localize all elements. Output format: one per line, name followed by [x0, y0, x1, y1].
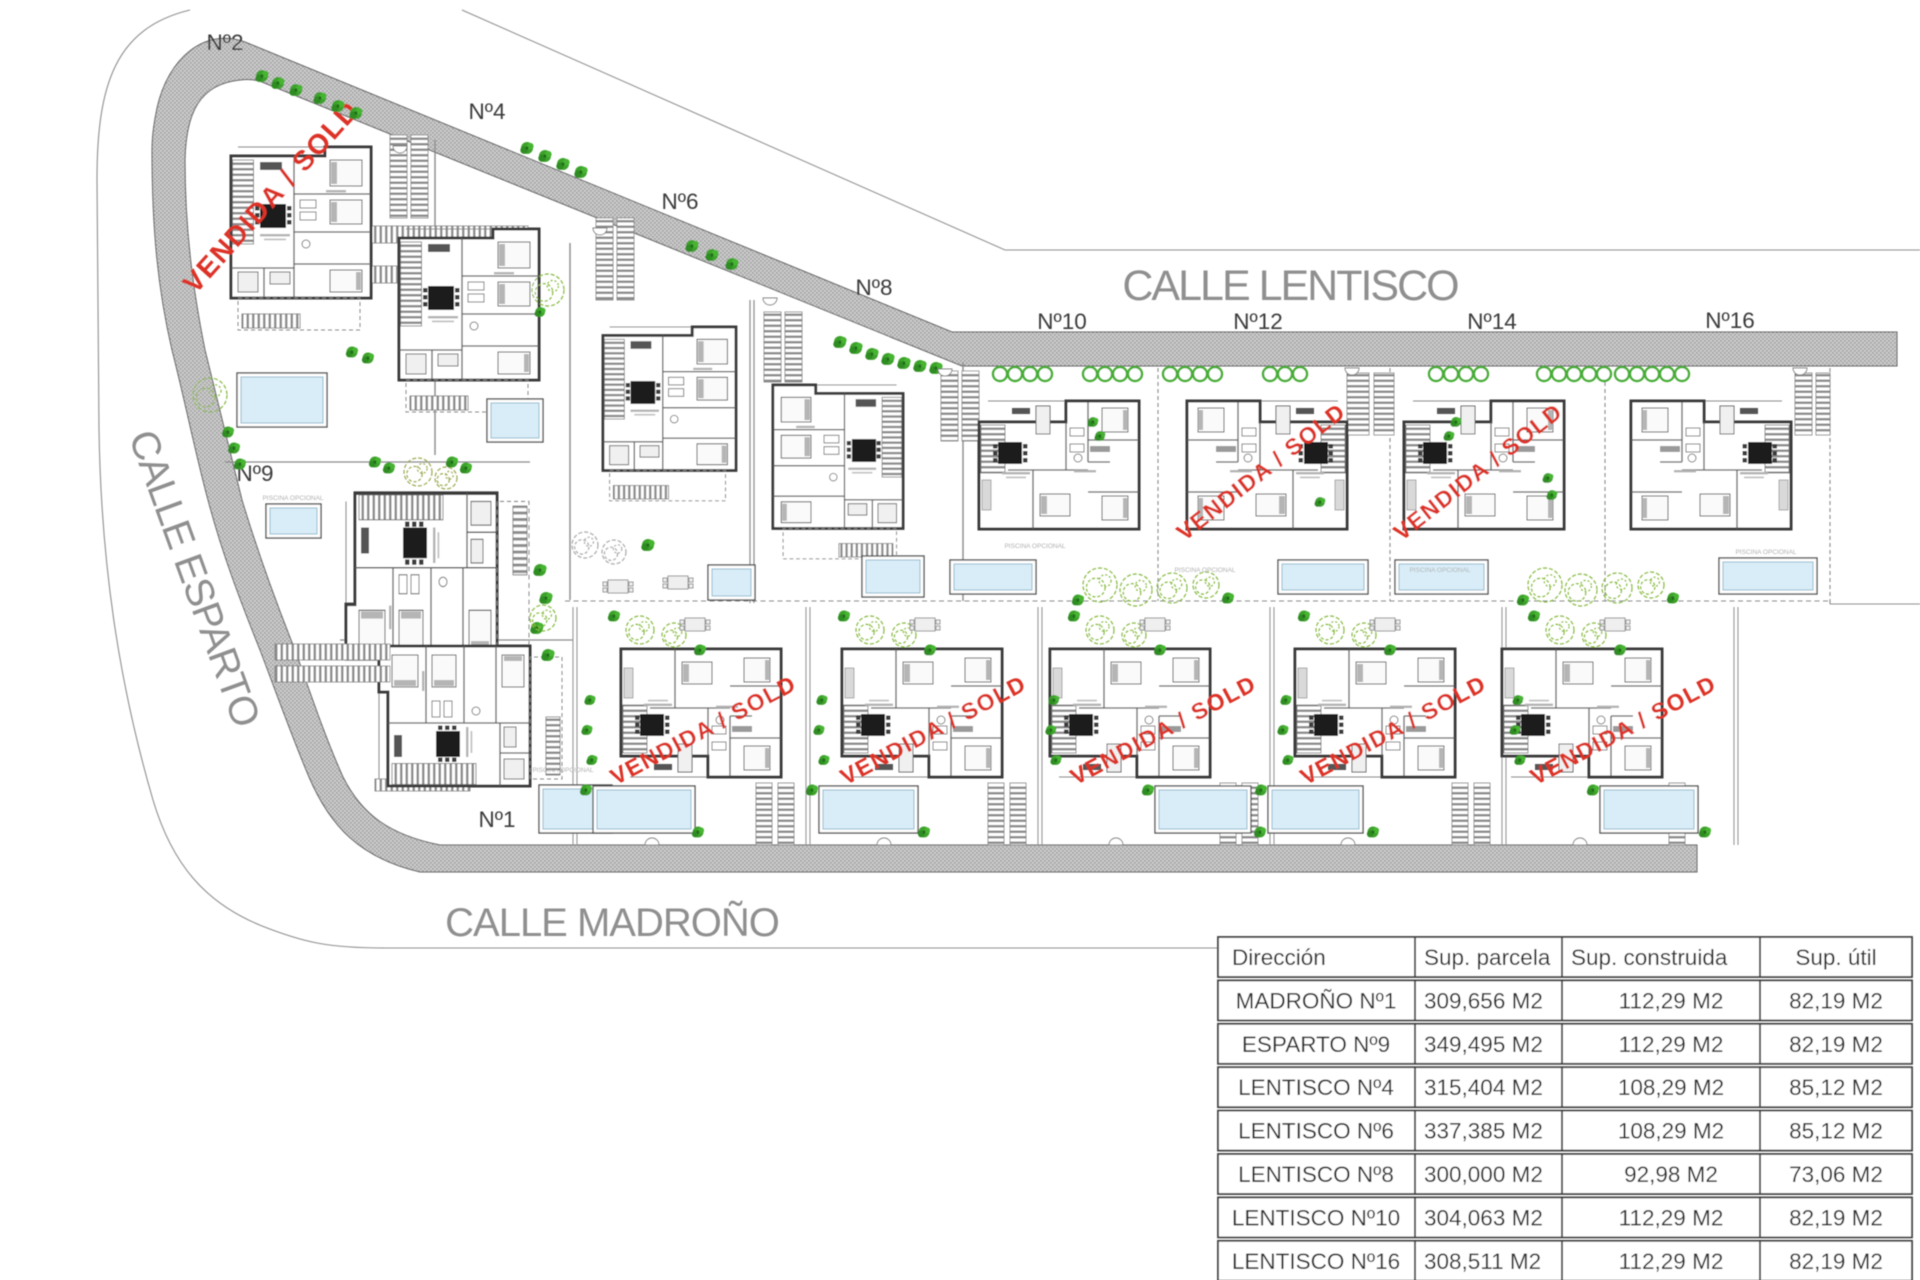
svg-text:LENTISCO Nº16: LENTISCO Nº16: [1232, 1249, 1400, 1274]
svg-text:300,000 M2: 300,000 M2: [1424, 1162, 1543, 1187]
svg-text:82,19 M2: 82,19 M2: [1789, 1032, 1883, 1057]
svg-text:Nº6: Nº6: [662, 189, 699, 214]
svg-text:PISCINA OPCIONAL: PISCINA OPCIONAL: [1174, 567, 1235, 574]
svg-text:108,29 M2: 108,29 M2: [1618, 1119, 1724, 1144]
svg-text:82,19 M2: 82,19 M2: [1789, 1249, 1883, 1274]
svg-text:PISCINA OPCIONAL: PISCINA OPCIONAL: [1004, 543, 1065, 550]
svg-text:Sup. parcela: Sup. parcela: [1424, 945, 1551, 970]
svg-text:337,385 M2: 337,385 M2: [1424, 1119, 1543, 1144]
svg-text:Nº16: Nº16: [1705, 308, 1755, 333]
svg-text:349,495 M2: 349,495 M2: [1424, 1032, 1543, 1057]
svg-text:PISCINA OPCIONAL: PISCINA OPCIONAL: [1735, 549, 1796, 556]
svg-text:Nº2: Nº2: [207, 30, 244, 55]
svg-text:PISCINA OPCIONAL: PISCINA OPCIONAL: [532, 767, 593, 774]
svg-text:CALLE MADROÑO: CALLE MADROÑO: [445, 900, 779, 945]
svg-text:Sup. construida: Sup. construida: [1571, 945, 1728, 970]
svg-text:112,29 M2: 112,29 M2: [1619, 1249, 1724, 1274]
svg-text:309,656 M2: 309,656 M2: [1424, 988, 1543, 1013]
svg-text:112,29 M2: 112,29 M2: [1619, 988, 1724, 1013]
svg-text:Nº1: Nº1: [479, 807, 516, 832]
svg-text:CALLE LENTISCO: CALLE LENTISCO: [1122, 262, 1458, 310]
svg-text:92,98 M2: 92,98 M2: [1624, 1162, 1718, 1187]
svg-text:108,29 M2: 108,29 M2: [1618, 1075, 1724, 1100]
svg-text:LENTISCO Nº4: LENTISCO Nº4: [1238, 1075, 1394, 1100]
svg-text:Nº8: Nº8: [856, 275, 893, 300]
svg-text:LENTISCO Nº6: LENTISCO Nº6: [1238, 1119, 1394, 1144]
svg-text:304,063 M2: 304,063 M2: [1424, 1205, 1543, 1230]
svg-text:82,19 M2: 82,19 M2: [1789, 988, 1883, 1013]
svg-text:73,06 M2: 73,06 M2: [1789, 1162, 1883, 1187]
svg-text:Nº10: Nº10: [1037, 309, 1087, 334]
svg-text:308,511 M2: 308,511 M2: [1424, 1249, 1541, 1274]
svg-text:82,19 M2: 82,19 M2: [1789, 1205, 1883, 1230]
svg-text:PISCINA OPCIONAL: PISCINA OPCIONAL: [262, 495, 323, 502]
svg-text:LENTISCO Nº10: LENTISCO Nº10: [1232, 1205, 1400, 1230]
svg-text:ESPARTO Nº9: ESPARTO Nº9: [1242, 1032, 1390, 1057]
svg-text:Nº14: Nº14: [1467, 309, 1517, 334]
svg-text:315,404 M2: 315,404 M2: [1424, 1075, 1543, 1100]
svg-text:Dirección: Dirección: [1232, 945, 1326, 970]
svg-text:85,12 M2: 85,12 M2: [1789, 1119, 1883, 1144]
svg-text:Sup. útil: Sup. útil: [1795, 945, 1876, 970]
svg-text:85,12 M2: 85,12 M2: [1789, 1075, 1883, 1100]
svg-text:LENTISCO Nº8: LENTISCO Nº8: [1238, 1162, 1394, 1187]
svg-text:112,29 M2: 112,29 M2: [1619, 1032, 1724, 1057]
svg-text:Nº12: Nº12: [1233, 309, 1283, 334]
svg-text:Nº4: Nº4: [469, 99, 506, 124]
svg-text:PISCINA OPCIONAL: PISCINA OPCIONAL: [1409, 567, 1470, 574]
svg-text:MADROÑO Nº1: MADROÑO Nº1: [1236, 988, 1397, 1013]
svg-text:112,29 M2: 112,29 M2: [1619, 1205, 1724, 1230]
